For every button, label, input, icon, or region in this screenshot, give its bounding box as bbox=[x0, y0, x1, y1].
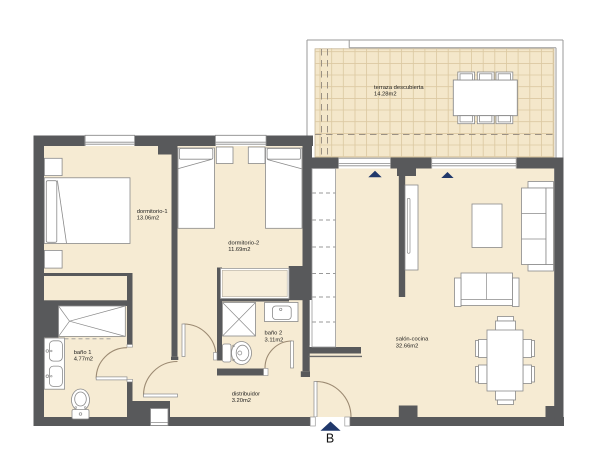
svg-text:baño 1: baño 1 bbox=[74, 350, 92, 356]
svg-text:11.69m2: 11.69m2 bbox=[228, 247, 250, 253]
svg-text:B: B bbox=[326, 432, 334, 446]
svg-text:32.66m2: 32.66m2 bbox=[396, 343, 419, 349]
svg-text:13.06m2: 13.06m2 bbox=[137, 216, 160, 222]
svg-text:terraza descubierta: terraza descubierta bbox=[374, 85, 424, 91]
svg-text:14.28m2: 14.28m2 bbox=[374, 92, 397, 98]
svg-text:4.77m2: 4.77m2 bbox=[74, 357, 93, 363]
svg-text:salón-cocina: salón-cocina bbox=[396, 337, 429, 343]
svg-text:3.20m2: 3.20m2 bbox=[232, 398, 251, 404]
svg-text:dormitorio-1: dormitorio-1 bbox=[137, 209, 168, 215]
svg-text:baño 2: baño 2 bbox=[265, 331, 283, 337]
svg-text:3.11m2: 3.11m2 bbox=[265, 337, 284, 343]
svg-text:dormitorio-2: dormitorio-2 bbox=[228, 240, 259, 246]
svg-text:distribuidor: distribuidor bbox=[232, 392, 260, 398]
